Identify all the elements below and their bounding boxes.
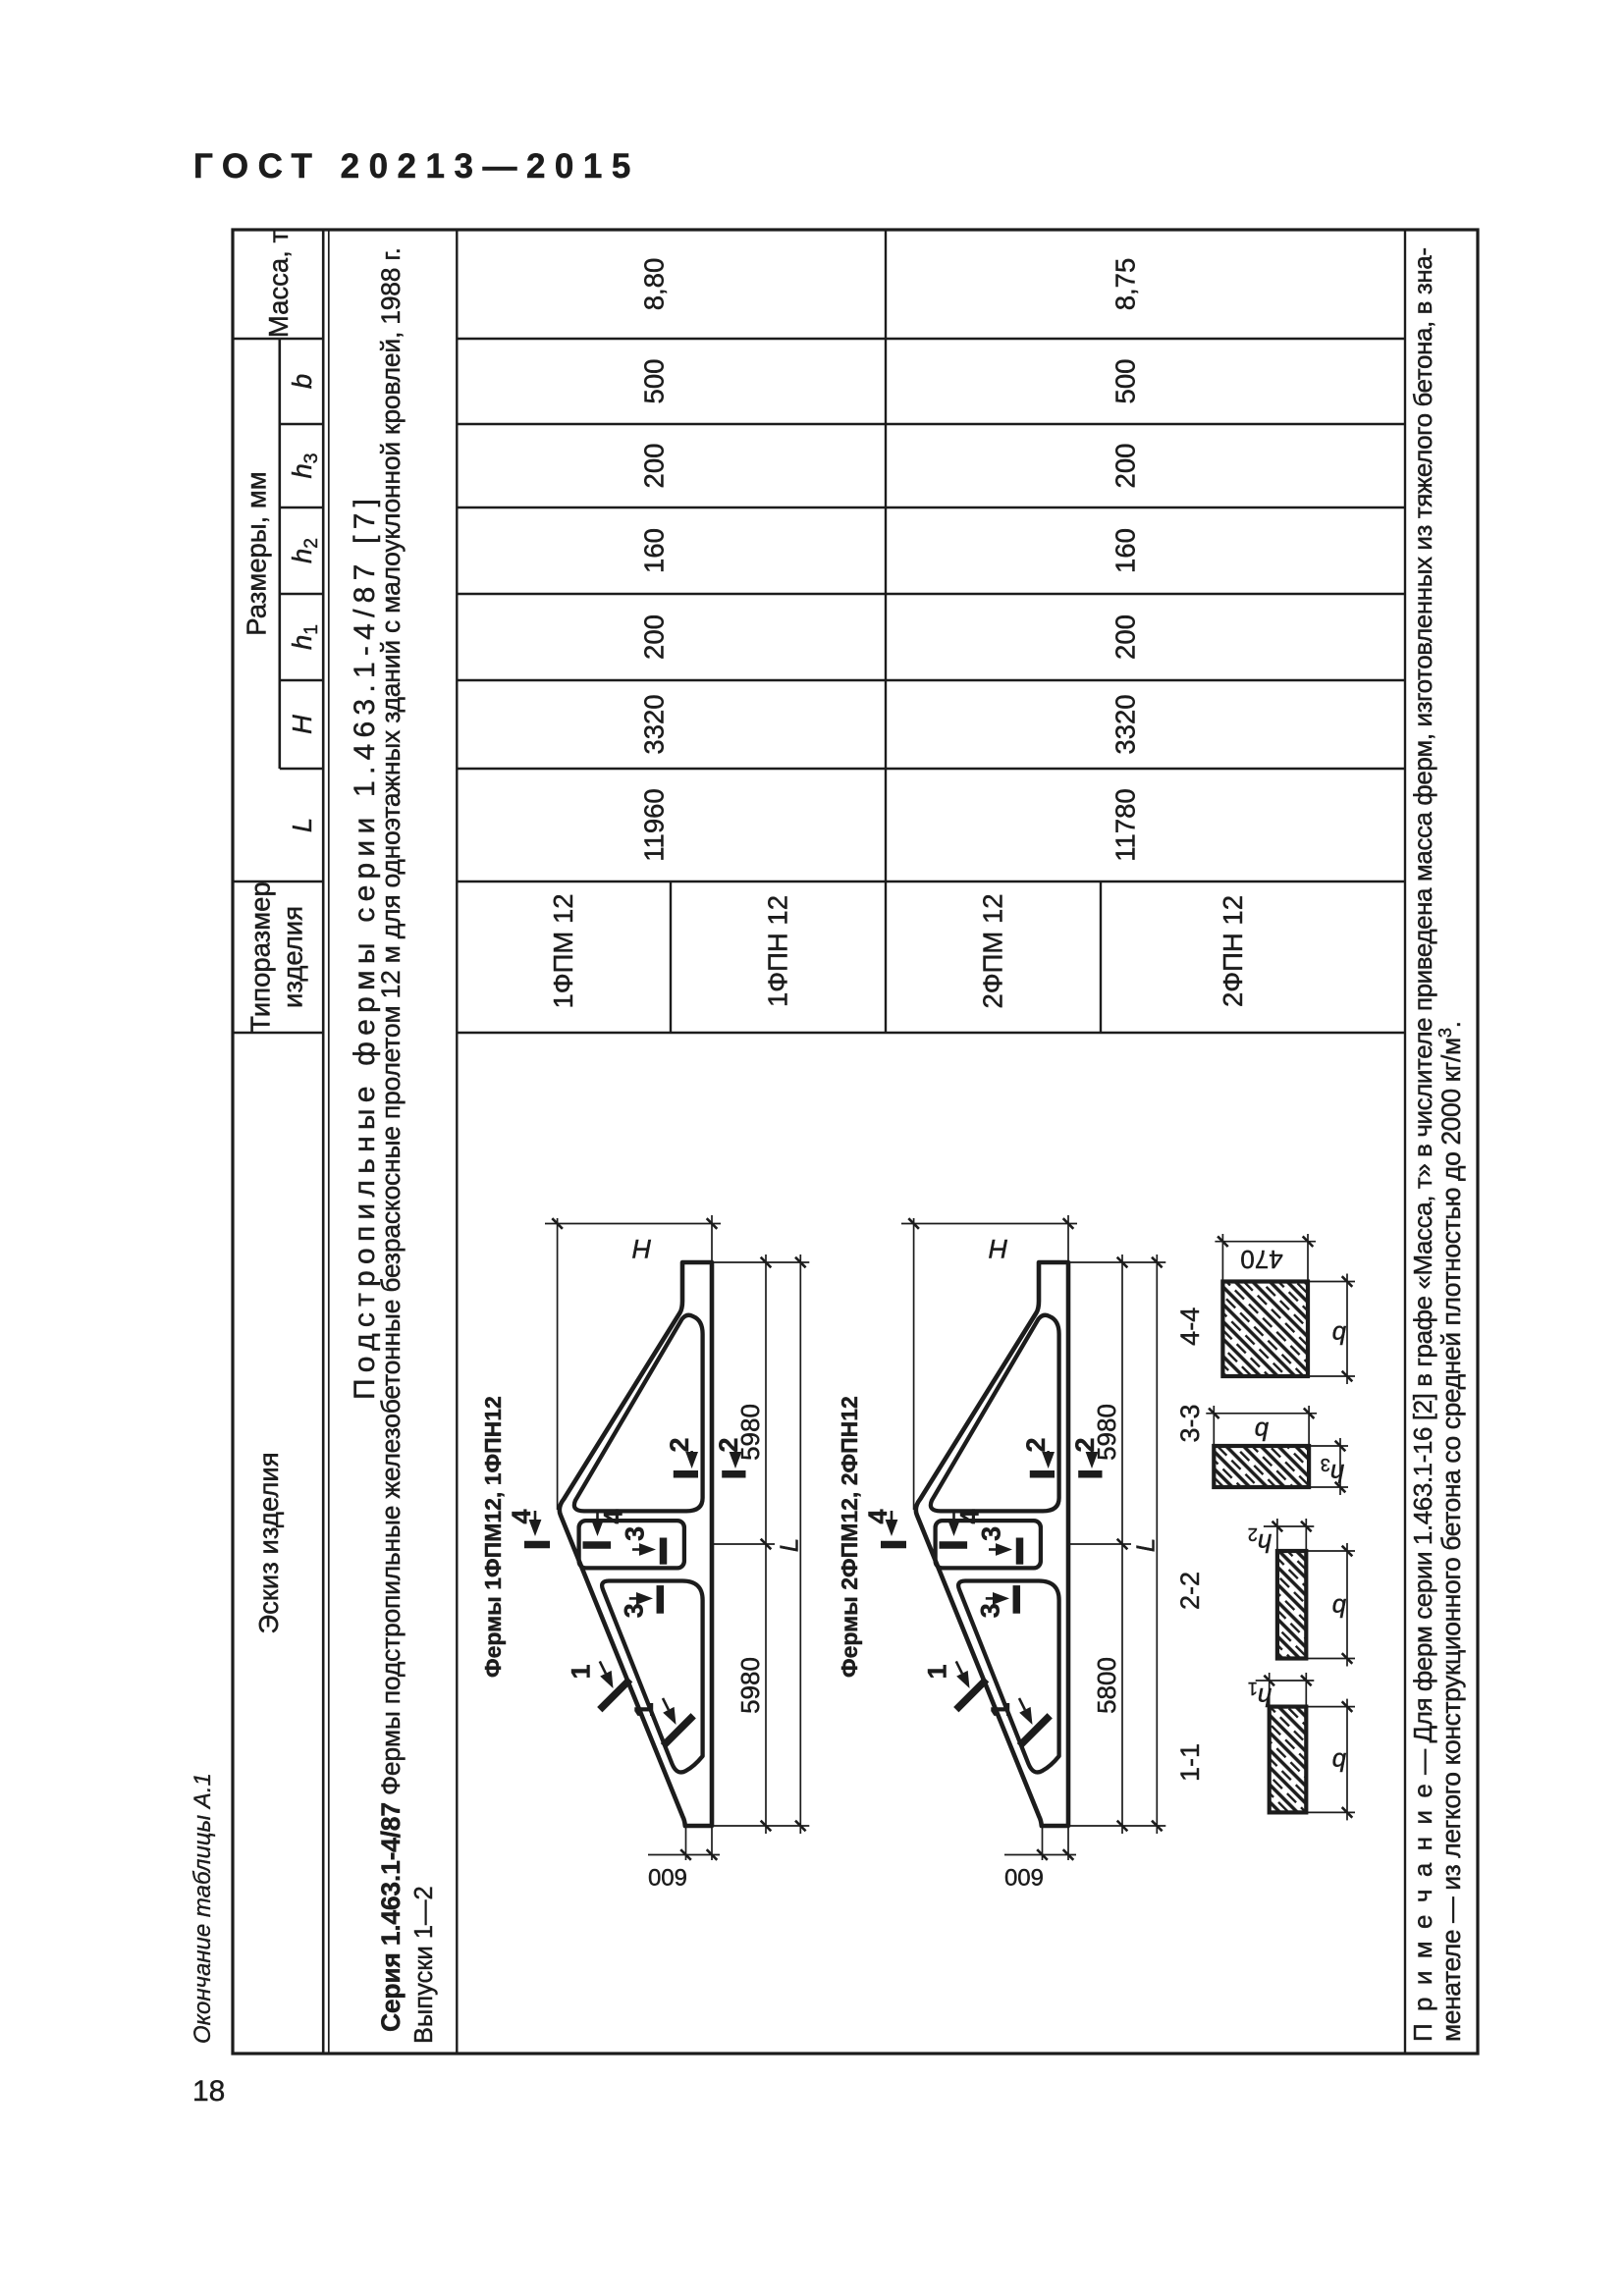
svg-text:Размеры, мм: Размеры, мм [242,471,272,635]
svg-text:18: 18 [192,2075,225,2108]
svg-text:1: 1 [629,1702,659,1717]
svg-text:600: 600 [648,1863,687,1890]
svg-text:160: 160 [639,528,670,573]
svg-text:8,75: 8,75 [1110,258,1141,311]
svg-text:600: 600 [1004,1863,1044,1890]
svg-text:менателе — из легкого конструк: менателе — из легкого конструкционного б… [1435,1021,1466,2042]
svg-text:H: H [287,715,317,734]
svg-text:b: b [1255,1416,1269,1446]
svg-text:изделия: изделия [278,906,308,1008]
svg-text:H: H [989,1234,1008,1263]
svg-text:470: 470 [1240,1245,1282,1274]
svg-text:3: 3 [976,1603,1005,1618]
svg-text:2: 2 [1070,1437,1100,1452]
svg-text:Фермы 1ФПМ12, 1ФПН12: Фермы 1ФПМ12, 1ФПН12 [480,1396,506,1678]
svg-text:Серия 1.463.1-4/87 Фермы подст: Серия 1.463.1-4/87 Фермы подстропильные … [376,247,406,2032]
svg-text:L: L [1131,1538,1161,1552]
svg-text:2-2: 2-2 [1175,1572,1205,1610]
svg-text:8,80: 8,80 [639,258,670,311]
svg-text:3320: 3320 [639,694,670,754]
svg-text:200: 200 [1110,444,1141,489]
svg-text:3: 3 [620,1603,649,1618]
svg-text:2: 2 [714,1437,743,1452]
svg-text:11780: 11780 [1110,788,1141,861]
svg-text:Типоразмер: Типоразмер [245,881,276,1033]
svg-text:1: 1 [923,1664,952,1679]
svg-text:1-1: 1-1 [1175,1743,1205,1782]
svg-text:Масса, т: Масса, т [263,231,294,339]
svg-text:500: 500 [1110,359,1141,404]
svg-text:h3: h3 [1321,1455,1345,1488]
svg-text:4: 4 [863,1509,893,1523]
svg-text:5800: 5800 [1092,1657,1121,1714]
svg-text:2: 2 [1021,1437,1051,1452]
svg-text:200: 200 [1110,614,1141,660]
svg-text:3: 3 [621,1526,650,1541]
svg-text:200: 200 [639,444,670,489]
svg-text:4-4: 4-4 [1175,1308,1205,1346]
svg-text:b: b [287,374,317,389]
svg-text:2: 2 [665,1437,694,1452]
svg-text:b: b [1332,1320,1346,1350]
svg-text:500: 500 [639,359,670,404]
svg-text:H: H [632,1234,652,1263]
svg-text:1: 1 [986,1702,1015,1717]
svg-text:h2: h2 [1248,1524,1272,1558]
svg-text:4: 4 [955,1509,985,1523]
svg-text:h1: h1 [287,624,322,650]
svg-text:h3: h3 [287,453,322,478]
svg-text:h2: h2 [287,538,322,563]
svg-text:L: L [287,818,317,832]
svg-text:П р и м е ч а н и е — Для фер: П р и м е ч а н и е — Для ферм серии 1.4… [1408,247,1437,2042]
svg-text:2ФПМ 12: 2ФПМ 12 [978,893,1008,1008]
svg-text:5980: 5980 [735,1657,765,1714]
svg-text:1: 1 [567,1664,596,1679]
svg-text:3320: 3320 [1110,694,1141,754]
svg-text:3: 3 [977,1526,1006,1541]
svg-text:2ФПН 12: 2ФПН 12 [1218,895,1248,1007]
svg-text:b: b [1332,1747,1346,1777]
svg-text:3-3: 3-3 [1175,1404,1205,1442]
svg-text:b: b [1332,1593,1346,1623]
svg-text:L: L [775,1538,804,1552]
svg-text:h1: h1 [1248,1679,1272,1712]
svg-text:200: 200 [639,614,670,660]
svg-text:ГОСТ 20213—2015: ГОСТ 20213—2015 [193,147,640,186]
svg-text:Окончание таблицы А.1: Окончание таблицы А.1 [189,1773,216,2044]
svg-text:Эскиз изделия: Эскиз изделия [253,1452,284,1633]
svg-text:Фермы 2ФПМ12, 2ФПН12: Фермы 2ФПМ12, 2ФПН12 [837,1396,862,1678]
svg-text:Выпуски 1—2: Выпуски 1—2 [410,1886,438,2044]
svg-text:11960: 11960 [639,788,670,861]
svg-text:1ФПН 12: 1ФПН 12 [763,895,793,1007]
svg-text:4: 4 [507,1509,536,1523]
svg-text:4: 4 [599,1509,628,1523]
svg-text:160: 160 [1110,528,1141,573]
svg-text:1ФПМ 12: 1ФПМ 12 [548,893,578,1008]
